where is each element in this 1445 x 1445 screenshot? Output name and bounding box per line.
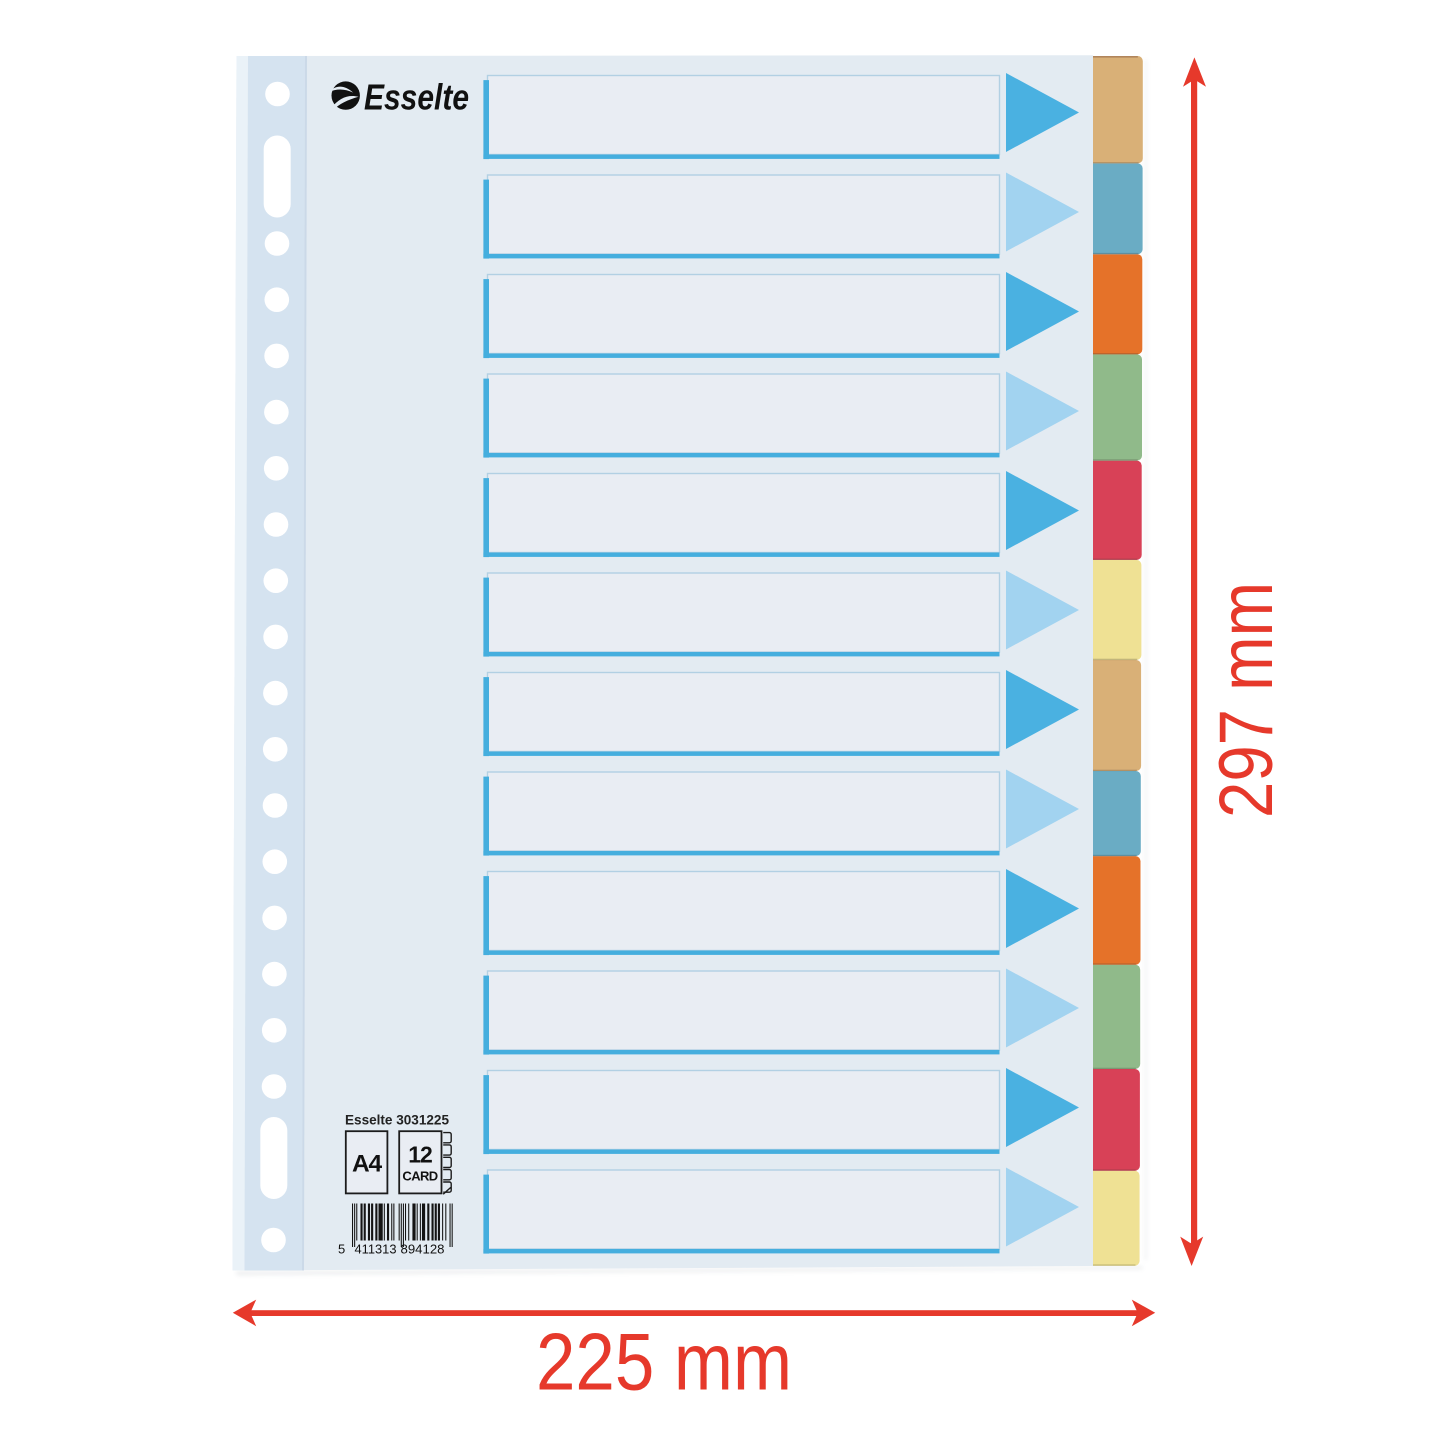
svg-text:297 mm: 297 mm [1204,582,1289,818]
svg-text:5: 5 [338,1242,345,1257]
svg-text:894128: 894128 [401,1242,445,1257]
svg-text:Esselte 3031225: Esselte 3031225 [345,1112,449,1128]
svg-text:411313: 411313 [355,1242,397,1257]
svg-text:225 mm: 225 mm [536,1318,792,1408]
svg-text:A4: A4 [352,1151,382,1178]
svg-text:CARD: CARD [402,1169,437,1184]
svg-text:Esselte: Esselte [364,77,469,118]
svg-text:12: 12 [408,1142,432,1168]
